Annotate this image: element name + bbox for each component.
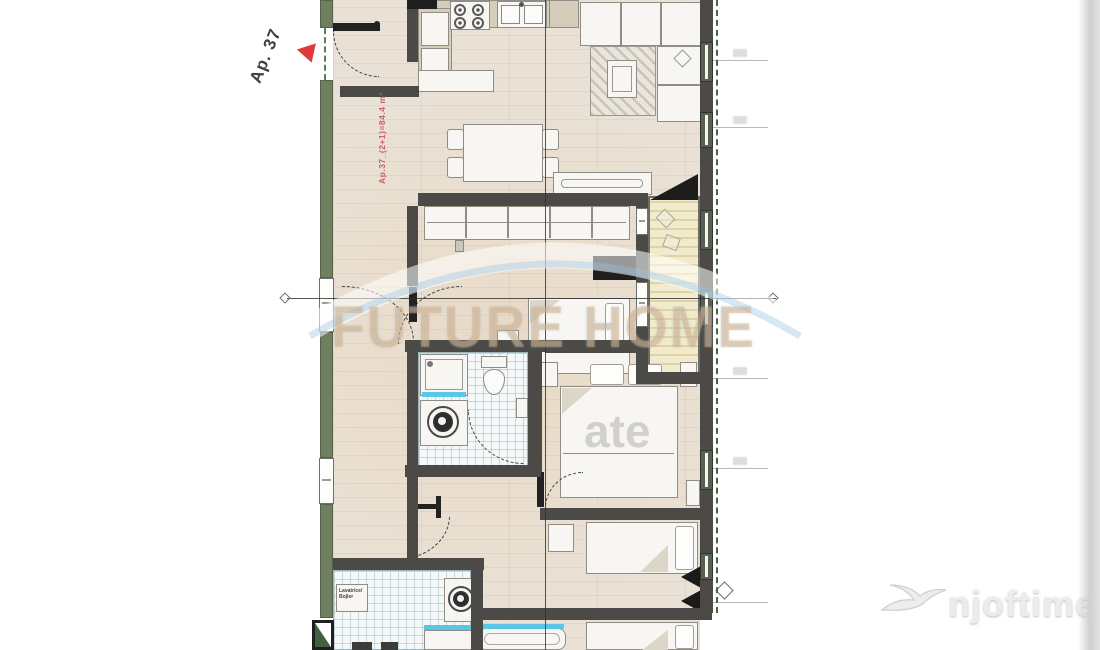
image-edge-band xyxy=(1078,0,1100,650)
wall xyxy=(407,0,418,62)
bathtub-icon xyxy=(478,628,566,650)
dimension-text xyxy=(733,116,747,124)
coffee-table-inner xyxy=(612,66,632,92)
wall xyxy=(407,0,437,9)
dining-chair xyxy=(447,129,464,150)
apartment-area-label: Ap.37_(2+1)=84.4 m² xyxy=(377,84,387,184)
brand-watermark-fragment: ate xyxy=(584,404,650,458)
burner-icon xyxy=(454,4,466,16)
coffee-table xyxy=(607,60,637,98)
sink-basin xyxy=(501,5,520,24)
sofa-cushion-divider xyxy=(658,84,701,86)
utility-label-line2: Bojler xyxy=(339,594,362,600)
shower-drain xyxy=(427,361,433,367)
dimension-line xyxy=(713,468,768,469)
shower-water-edge xyxy=(424,625,478,630)
window xyxy=(700,553,713,580)
bedroom2-door-leaf xyxy=(537,472,544,507)
faucet-icon xyxy=(519,2,524,7)
floor-plan-image: Lavatrice/ Bojler xyxy=(0,0,1100,650)
corner-shelf xyxy=(686,480,700,506)
burner-icon xyxy=(454,17,466,29)
dimension-line xyxy=(713,378,768,379)
kitchen-sink-icon xyxy=(497,1,547,28)
wall xyxy=(407,352,418,470)
nightstand xyxy=(541,362,558,387)
exterior-wall xyxy=(700,580,713,613)
dimension-line xyxy=(713,602,768,603)
exterior-wall xyxy=(700,82,713,112)
shower-water-edge xyxy=(422,392,466,397)
dimension-line xyxy=(713,127,768,128)
dimension-text xyxy=(733,457,747,465)
exterior-wall xyxy=(700,490,713,553)
wall xyxy=(405,465,541,477)
brand-watermark-text: FUTURE HOME xyxy=(331,294,756,361)
dimension-text xyxy=(733,49,747,57)
building-door-frame xyxy=(312,620,334,650)
exterior-wall xyxy=(700,0,713,42)
burner-icon xyxy=(472,17,484,29)
sink-basin xyxy=(524,5,543,24)
stove-icon xyxy=(450,1,490,30)
bathtub-inner xyxy=(484,633,560,645)
washing-machine-icon xyxy=(420,400,468,446)
dimension-line xyxy=(713,60,768,61)
bed-pillow xyxy=(675,625,694,649)
red-triangle-pin-icon xyxy=(297,43,321,65)
door-leaf-triangle xyxy=(315,623,331,647)
wall xyxy=(333,558,484,570)
bed-pillow xyxy=(590,364,624,385)
wall xyxy=(528,352,542,472)
shower-tray xyxy=(424,630,478,650)
furniture-block-partial xyxy=(381,642,398,650)
nightstand xyxy=(548,524,574,552)
axis-end-marker xyxy=(279,292,290,303)
door-knob xyxy=(374,21,380,27)
window xyxy=(319,458,334,504)
utility-label: Lavatrice/ Bojler xyxy=(339,588,362,601)
sofa-cushion-divider xyxy=(620,3,622,45)
window xyxy=(700,450,713,490)
entrance-opening-dashed xyxy=(324,28,326,80)
kitchen-tall-unit xyxy=(549,0,579,28)
burner-icon xyxy=(472,4,484,16)
kitchen-fridge xyxy=(421,12,449,46)
window xyxy=(700,112,713,148)
apartment-marker-label: Ap. 37 xyxy=(246,0,302,86)
washer-door-glass xyxy=(457,595,464,602)
window xyxy=(700,42,713,82)
entrance-door-leaf xyxy=(333,23,380,31)
pivot-bar xyxy=(417,504,437,509)
window-diamond-marker xyxy=(715,581,733,599)
bathtub-water-edge xyxy=(480,624,564,629)
washer-door-glass xyxy=(438,417,446,425)
dimension-text xyxy=(733,367,747,375)
swallow-icon xyxy=(878,580,950,622)
sofa-cushion-divider xyxy=(660,3,662,45)
kitchen-island xyxy=(418,70,494,92)
wall xyxy=(407,470,418,570)
exterior-wall-green xyxy=(320,504,333,618)
exterior-wall-green xyxy=(320,0,333,28)
utility-cabinet: Lavatrice/ Bojler xyxy=(336,584,368,612)
wall xyxy=(540,508,712,520)
bed-pillow xyxy=(675,526,694,570)
sofa-top-section xyxy=(580,2,702,46)
furniture-block-partial xyxy=(352,642,372,650)
wall xyxy=(478,608,712,620)
